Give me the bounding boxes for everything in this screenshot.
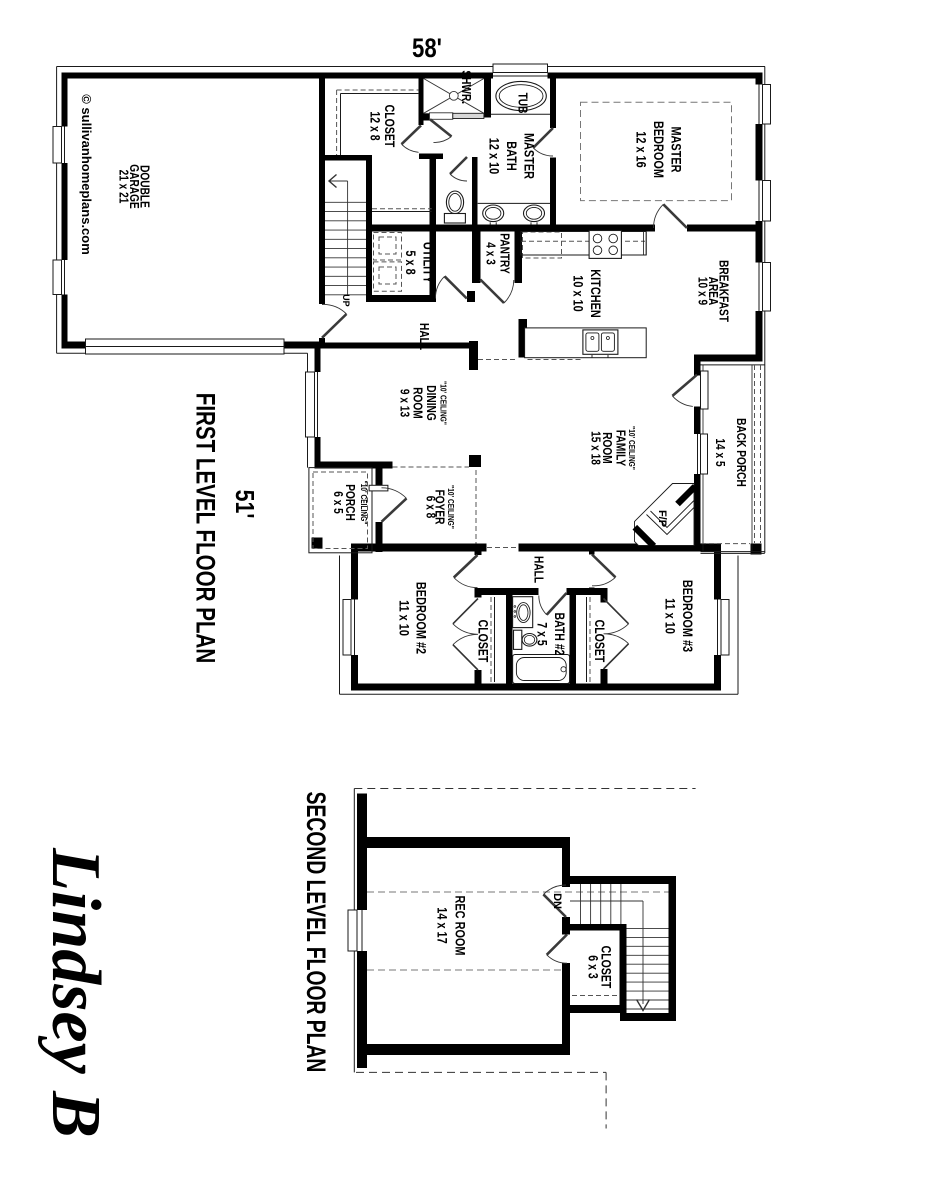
svg-text:HALL: HALL [416,323,430,350]
svg-text:F/P: F/P [656,510,668,527]
svg-text:"10' CEILING"FAMILYROOM15 x 18: "10' CEILING"FAMILYROOM15 x 18 [588,426,637,470]
svg-text:CLOSET: CLOSET [475,620,491,663]
svg-text:HALL: HALL [531,556,545,583]
svg-text:UP: UP [341,294,351,307]
svg-text:58': 58' [412,34,442,64]
svg-text:KITCHEN10 x 10: KITCHEN10 x 10 [570,269,603,318]
svg-text:SECOND LEVEL FLOOR PLAN: SECOND LEVEL FLOOR PLAN [301,792,331,1073]
svg-text:© sullivanhomeplans.com: © sullivanhomeplans.com [79,94,94,255]
svg-text:DN: DN [551,893,563,909]
svg-text:DOUBLEGARAGE21 x 21: DOUBLEGARAGE21 x 21 [116,164,151,209]
svg-text:CLOSET: CLOSET [591,620,607,663]
svg-text:SHWR.: SHWR. [459,70,473,104]
svg-text:Lindsey B: Lindsey B [37,847,114,1138]
svg-text:51': 51' [229,490,259,519]
svg-text:TUB: TUB [515,93,529,114]
svg-text:FIRST LEVEL FLOOR PLAN: FIRST LEVEL FLOOR PLAN [190,393,220,663]
